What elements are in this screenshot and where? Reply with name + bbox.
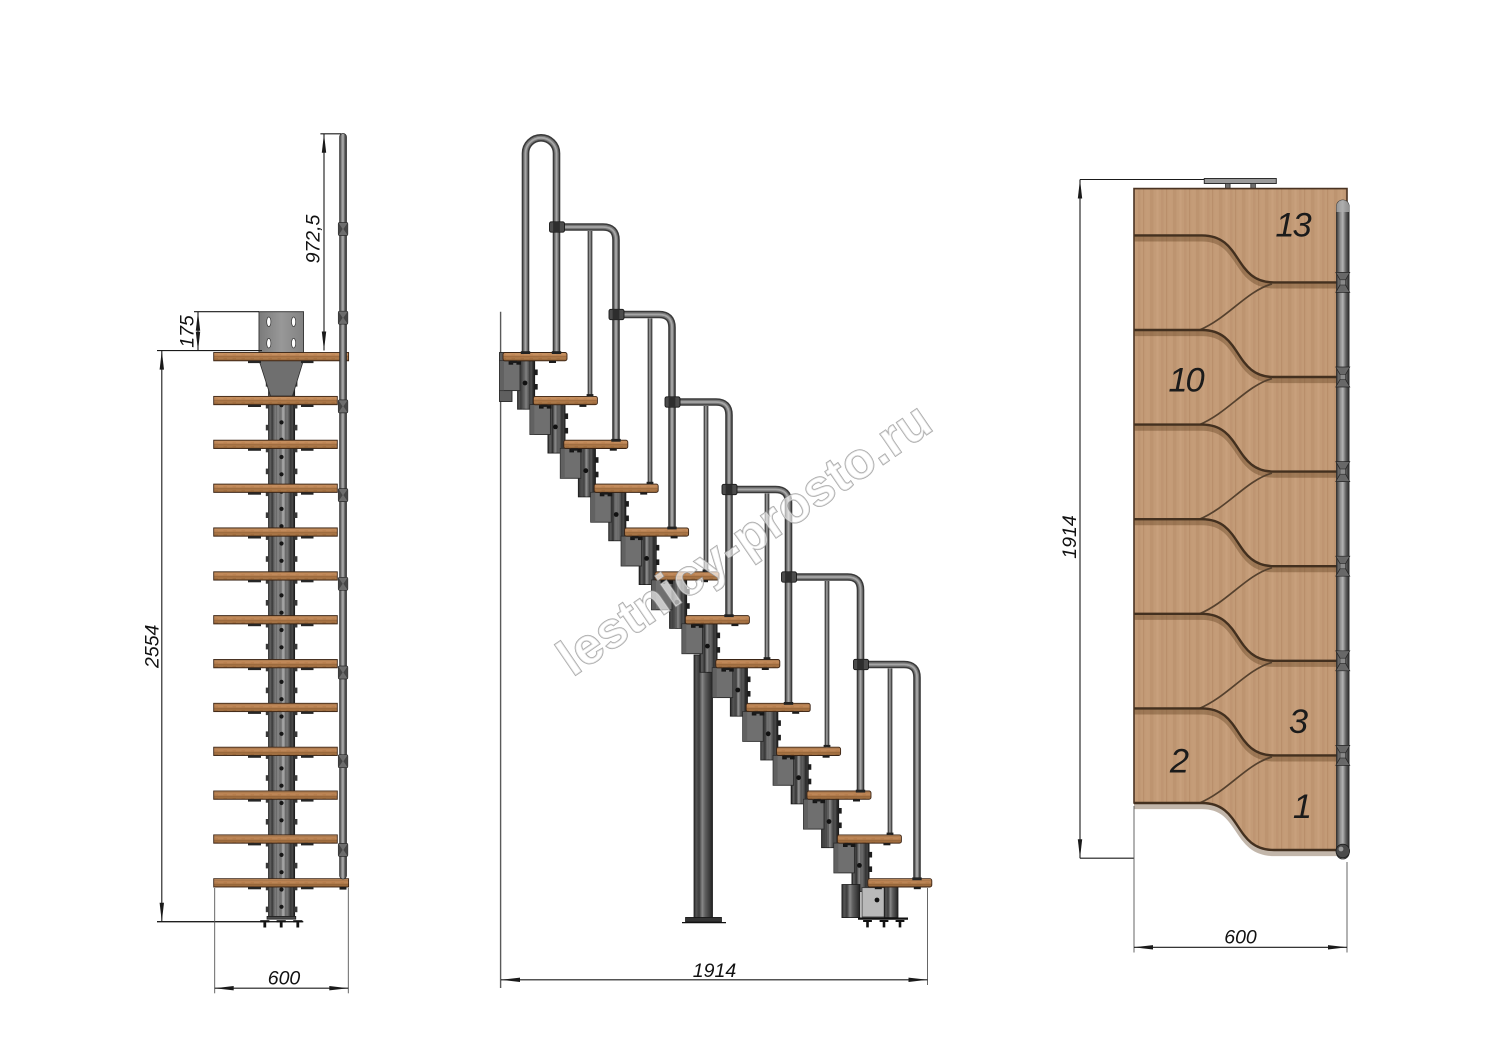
svg-text:2: 2 xyxy=(1169,743,1189,781)
svg-text:175: 175 xyxy=(177,315,199,348)
svg-text:600: 600 xyxy=(268,968,301,990)
svg-text:10: 10 xyxy=(1168,362,1204,400)
svg-text:1: 1 xyxy=(1293,788,1312,826)
svg-text:600: 600 xyxy=(1224,927,1257,949)
svg-text:3: 3 xyxy=(1289,703,1308,741)
svg-text:13: 13 xyxy=(1275,207,1311,245)
svg-text:1914: 1914 xyxy=(693,960,737,982)
svg-text:2554: 2554 xyxy=(142,624,164,669)
svg-text:1914: 1914 xyxy=(1059,515,1081,559)
svg-text:972,5: 972,5 xyxy=(303,214,325,263)
